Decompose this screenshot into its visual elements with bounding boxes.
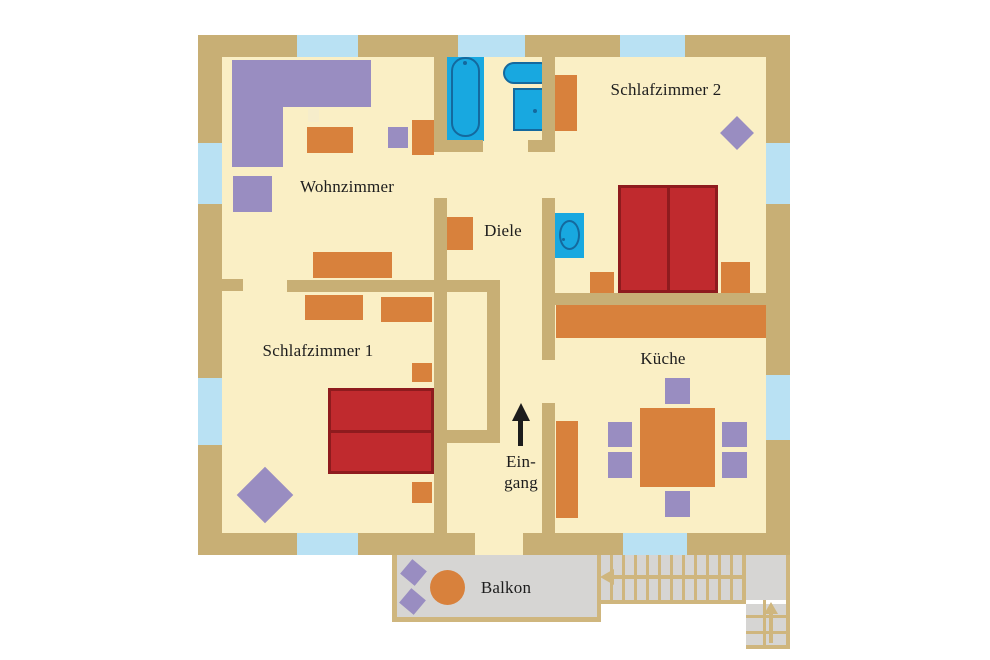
kitchen-table (640, 408, 715, 487)
bed-bedroom2-divider (667, 188, 670, 290)
outer-wall-right (766, 35, 790, 555)
kitchen-counter (556, 305, 766, 338)
kitchen-chair-left-2 (608, 452, 632, 478)
staircase-landing (746, 555, 786, 600)
kitchen-chair-left-1 (608, 422, 632, 447)
sink-bedroom2 (555, 213, 584, 258)
floor-plan: Wohnzimmer Schlafzimmer 2 Diele Schlafzi… (0, 0, 990, 660)
window-top-living (297, 35, 358, 57)
cabinet-hallway (447, 217, 473, 250)
room-label-entrance-line1: Ein- (506, 452, 536, 471)
wall-bathroom-bottom-left (434, 140, 483, 152)
window-left-living (198, 143, 222, 204)
kitchen-chair-right-1 (722, 422, 747, 447)
window-bottom-bedroom1 (297, 533, 358, 555)
fridge (556, 421, 578, 518)
tv (388, 127, 408, 148)
wall-hallway-right (542, 198, 555, 360)
armchair (233, 176, 272, 212)
stair-arrow-up-shaft (769, 613, 773, 643)
washing-machine-knob (533, 109, 537, 113)
nightstand-bedroom2-right (721, 262, 750, 293)
balcony-door-opening (475, 533, 523, 555)
staircase-border-right (786, 555, 790, 649)
stair-arrow-left-icon (600, 569, 614, 585)
bathtub (447, 53, 484, 141)
kitchen-chair-right-2 (722, 452, 747, 478)
wall-kitchen-top (555, 293, 766, 305)
wall-bedroom1-top-stub (222, 279, 243, 291)
cabinet-bedroom1 (412, 363, 432, 382)
window-right-kitchen (766, 375, 790, 440)
room-label-bedroom1: Schlafzimmer 1 (263, 341, 374, 361)
staircase-side-tread-1 (746, 615, 786, 618)
staircase-run-border-bottom (597, 600, 746, 604)
sofa-top-section (232, 60, 371, 107)
bed-bedroom2 (618, 185, 718, 293)
wall-entrance-right (542, 403, 555, 533)
coffee-table (307, 127, 353, 153)
sink-basin (559, 220, 580, 250)
tv-board (412, 120, 434, 155)
wall-entrance-top (447, 430, 500, 443)
dresser-bedroom1-right (381, 297, 432, 322)
room-label-kitchen: Küche (640, 349, 685, 369)
window-left-bedroom1 (198, 378, 222, 445)
room-label-living: Wohnzimmer (300, 177, 394, 197)
outer-wall-left (198, 35, 222, 555)
washbasin (503, 62, 544, 84)
window-top-bathroom (458, 35, 525, 57)
window-right-bedroom2 (766, 143, 790, 204)
side-table (308, 109, 319, 122)
nightstand-bedroom2-left (590, 272, 614, 293)
balcony-border-left (392, 555, 397, 622)
wall-bathroom-left (434, 55, 447, 152)
washing-machine (513, 88, 544, 131)
staircase-border-bottom (746, 645, 790, 649)
staircase-side-tread-2 (746, 631, 786, 634)
sofa-side-section (232, 107, 283, 167)
bed-bedroom1-divider (331, 430, 431, 433)
bathtub-rim (451, 57, 480, 137)
sideboard (313, 252, 392, 278)
kitchen-chair-bottom (665, 491, 690, 517)
room-label-balcony: Balkon (481, 578, 531, 598)
stair-arrow-left-shaft (614, 575, 742, 579)
room-label-entrance-line2: gang (504, 473, 538, 492)
wall-bedroom1-top (287, 280, 500, 292)
balcony-table (430, 570, 465, 605)
room-label-hallway: Diele (484, 221, 522, 241)
balcony-border-bottom (392, 617, 601, 622)
wall-bathroom-right (542, 55, 555, 152)
dresser-bedroom1-left (305, 295, 363, 320)
window-top-bedroom2 (620, 35, 685, 57)
wardrobe-bedroom2 (555, 75, 577, 131)
room-label-bedroom2: Schlafzimmer 2 (611, 80, 722, 100)
window-bottom-kitchen (623, 533, 687, 555)
kitchen-chair-top (665, 378, 690, 404)
bathtub-drain (463, 61, 467, 65)
wall-hallway-left (434, 198, 447, 533)
wall-closet-right (487, 292, 500, 433)
room-label-entrance: Ein-gang (504, 451, 538, 493)
nightstand-bedroom1 (412, 482, 432, 503)
entrance-arrow-shaft (518, 419, 523, 446)
sink-tap (562, 238, 565, 241)
bed-bedroom1 (328, 388, 434, 474)
